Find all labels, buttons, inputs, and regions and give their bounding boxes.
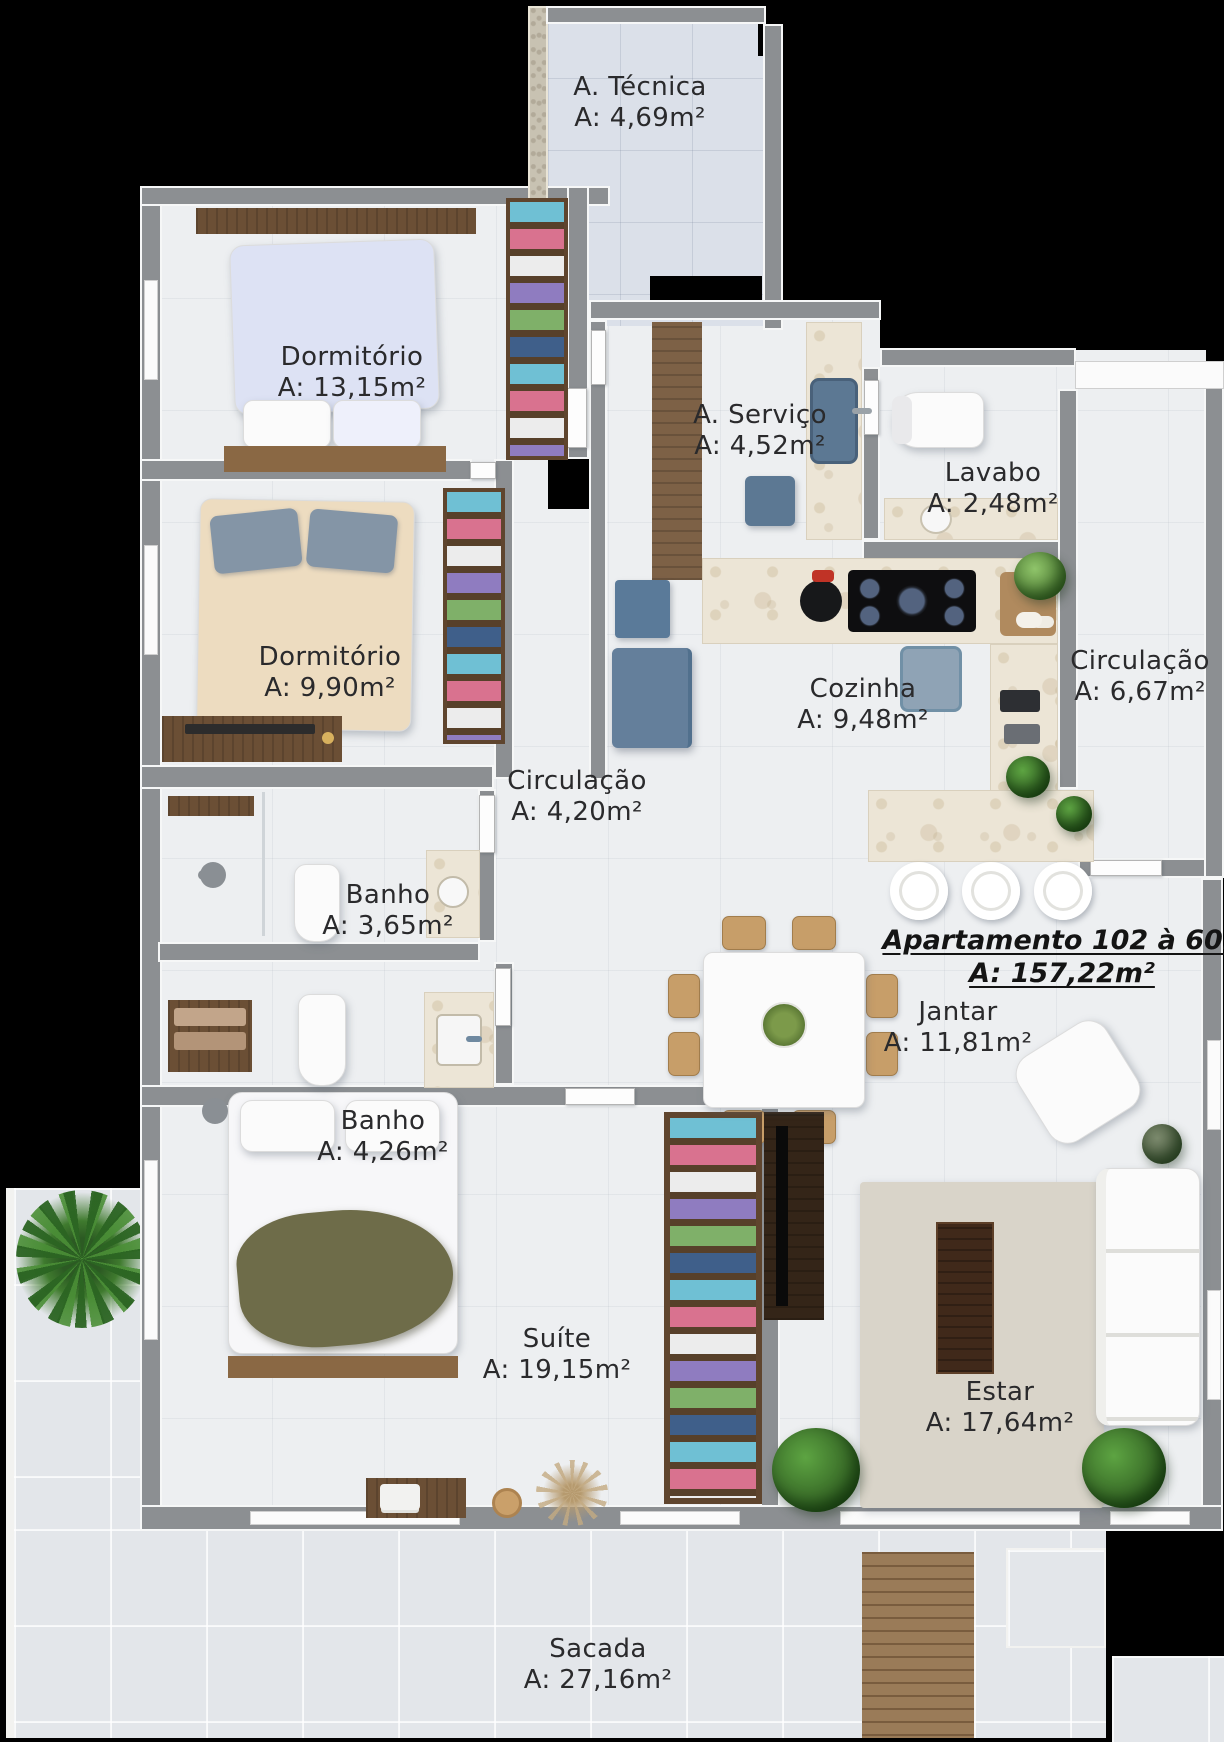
service-basket [745, 476, 795, 526]
living-coffee-table [936, 1222, 994, 1374]
kitchen-garlic [1016, 612, 1042, 628]
bath1-towel-shelf [168, 796, 254, 816]
window-left-2 [144, 545, 158, 655]
bedroom1-shelf [196, 208, 476, 234]
dining-chair-1 [722, 916, 766, 950]
room-name: Suíte [483, 1324, 632, 1355]
service-wall-top [589, 300, 881, 320]
kitchen-appliance-dark [1000, 690, 1040, 712]
room-name: Cozinha [797, 674, 929, 705]
balcony-wood-deck [862, 1552, 974, 1738]
kitchen-kettle-lid [812, 570, 834, 582]
shaft-service-top [650, 276, 762, 302]
room-area: A: 13,15m² [278, 373, 427, 404]
outer-wall-right-top [1204, 385, 1224, 878]
bedroom2-wall-bottom [140, 765, 494, 789]
room-name: Estar [926, 1377, 1075, 1408]
bath1-shower-head [200, 862, 226, 888]
bath1-shower-glass [262, 792, 265, 936]
bedroom1-wardrobe [506, 198, 568, 460]
suite-door [565, 1088, 635, 1105]
bedroom2-door [470, 462, 496, 479]
room-label-cozinha: Cozinha A: 9,48m² [797, 674, 929, 736]
bedroom2-pillow-left [209, 508, 303, 575]
living-side-plant [1142, 1124, 1182, 1164]
room-name: A. Técnica [573, 72, 707, 103]
window-bottom-4 [1110, 1511, 1190, 1525]
technical-wall-right [763, 24, 783, 330]
kitchen-peninsula-plant [1056, 796, 1092, 832]
suite-towel-stack [380, 1484, 420, 1510]
technical-wall-top [546, 6, 766, 24]
room-label-banho-1: Banho A: 3,65m² [322, 880, 454, 942]
bedroom2-tv [185, 724, 315, 734]
kitchen-appliance-gray [1004, 724, 1040, 744]
room-name: Dormitório [259, 642, 402, 673]
window-right-1 [1207, 1040, 1221, 1130]
kitchen-plant-small [1006, 756, 1050, 798]
room-label-circulacao-667: Circulação A: 6,67m² [1070, 646, 1210, 708]
room-name: Lavabo [927, 458, 1059, 489]
service-wall-left [589, 320, 607, 780]
window-bottom-3 [840, 1511, 1080, 1525]
room-area: A: 27,16m² [524, 1665, 673, 1696]
bedroom1-door [567, 388, 587, 448]
room-area: A: 19,15m² [483, 1355, 632, 1386]
service-faucet [852, 408, 872, 414]
room-name: Banho [322, 880, 454, 911]
hall-landing-strip [1075, 361, 1224, 389]
room-name: Banho [317, 1106, 449, 1137]
apartment-title-area: A: 157,22m² [882, 957, 1224, 990]
apartment-title-name: Apartamento 102 à 602 [882, 924, 1224, 957]
bedroom2-deco-knob [322, 732, 334, 744]
room-label-banho-2: Banho A: 4,26m² [317, 1106, 449, 1168]
room-area: A: 11,81m² [884, 1028, 1033, 1059]
suite-bench [228, 1356, 458, 1378]
kitchen-herb-plant [1014, 552, 1066, 600]
room-label-lavabo: Lavabo A: 2,48m² [927, 458, 1059, 520]
room-label-servico: A. Serviço A: 4,52m² [693, 400, 827, 462]
bedroom2-tv-console [162, 716, 342, 762]
room-label-jantar: Jantar A: 11,81m² [884, 997, 1033, 1059]
room-area: A: 4,26m² [317, 1137, 449, 1168]
room-area: A: 3,65m² [322, 911, 454, 942]
living-tv [776, 1126, 788, 1306]
room-area: A: 4,20m² [507, 797, 647, 828]
apartment-title: Apartamento 102 à 602 A: 157,22m² [882, 924, 1224, 990]
room-name: Jantar [884, 997, 1033, 1028]
balcony-palm-plant [16, 1190, 148, 1328]
room-label-tecnica: A. Técnica A: 4,69m² [573, 72, 707, 134]
bedroom1-pillow-left [243, 400, 331, 448]
room-label-suite: Suíte A: 19,15m² [483, 1324, 632, 1386]
living-floor-plant-left [772, 1428, 860, 1512]
bath2-faucet [466, 1036, 482, 1042]
room-area: A: 9,90m² [259, 673, 402, 704]
service-corner-tile [1006, 1548, 1106, 1648]
living-tv-unit [764, 1112, 824, 1320]
bath1-door [479, 795, 495, 853]
dining-chair-2 [792, 916, 836, 950]
entry-door [1090, 860, 1162, 876]
room-label-sacada: Sacada A: 27,16m² [524, 1634, 673, 1696]
bath2-towel-1 [174, 1008, 246, 1026]
void-top-right [880, 0, 1224, 350]
room-label-dormitorio-1: Dormitório A: 13,15m² [278, 342, 427, 404]
kitchen-stool-3 [1034, 862, 1092, 920]
dining-chair-5 [668, 974, 700, 1018]
service-door [591, 330, 606, 385]
room-name: Sacada [524, 1634, 673, 1665]
window-left-3 [144, 1160, 158, 1340]
bedroom2-wardrobe [443, 488, 505, 744]
kitchen-blue-cabinet [615, 580, 670, 638]
room-name: A. Serviço [693, 400, 827, 431]
balcony-corner-tile [1112, 1656, 1224, 1742]
window-bottom-2 [620, 1511, 740, 1525]
room-area: A: 9,48m² [797, 705, 929, 736]
room-name: Circulação [1070, 646, 1210, 677]
kitchen-fridge [612, 648, 692, 748]
lavatory-wall-top [880, 348, 1076, 367]
bath2-towel-2 [174, 1032, 246, 1050]
floor-plan: A. Técnica A: 4,69m² Dormitório A: 13,15… [0, 0, 1224, 1742]
room-label-circulacao-420: Circulação A: 4,20m² [507, 766, 647, 828]
window-right-2 [1207, 1290, 1221, 1400]
window-left-1 [144, 280, 158, 380]
dining-centerpiece [761, 1002, 807, 1048]
room-label-estar: Estar A: 17,64m² [926, 1377, 1075, 1439]
dining-chair-6 [668, 1032, 700, 1076]
bedroom2-pillow-right [306, 508, 399, 573]
bath2-toilet [298, 994, 346, 1086]
bath2-door [495, 968, 511, 1026]
kitchen-kettle [800, 580, 842, 622]
bath2-shower-head [202, 1098, 228, 1124]
suite-branch-deco [536, 1460, 608, 1526]
room-name: Dormitório [278, 342, 427, 373]
room-area: A: 17,64m² [926, 1408, 1075, 1439]
bedroom1-bed-frame [224, 446, 446, 472]
room-area: A: 6,67m² [1070, 677, 1210, 708]
bedroom1-pillow-right [333, 400, 421, 448]
room-label-dormitorio-2: Dormitório A: 9,90m² [259, 642, 402, 704]
kitchen-stove [848, 570, 976, 632]
room-area: A: 4,52m² [693, 431, 827, 462]
room-area: A: 2,48m² [927, 489, 1059, 520]
kitchen-stool-2 [962, 862, 1020, 920]
kitchen-stool-1 [890, 862, 948, 920]
living-floor-plant-right [1082, 1428, 1166, 1508]
bath-divider-wall [158, 942, 480, 962]
suite-basket [492, 1488, 522, 1518]
lavatory-toilet-tank [892, 396, 912, 444]
living-sofa [1096, 1168, 1200, 1426]
room-name: Circulação [507, 766, 647, 797]
room-area: A: 4,69m² [573, 103, 707, 134]
suite-closet [664, 1112, 762, 1504]
